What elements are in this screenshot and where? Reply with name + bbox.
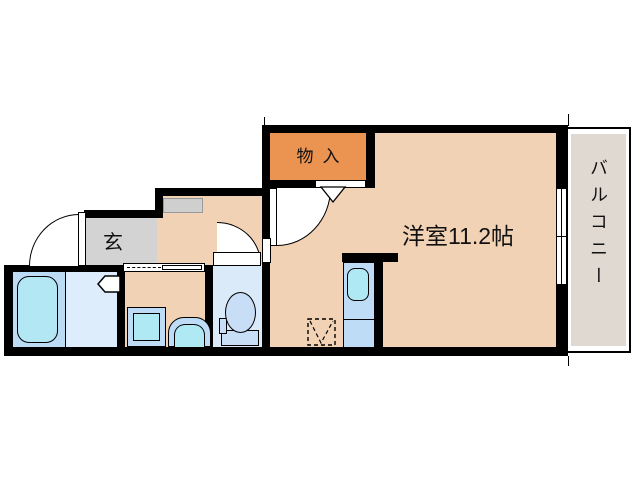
dimension-tick [568, 114, 569, 126]
storage-label: 物入 [270, 131, 366, 178]
wall [4, 265, 125, 272]
main-room-label: 洋室11.2帖 [402, 217, 514, 251]
wall [262, 263, 270, 347]
wall [4, 347, 568, 356]
wall [556, 285, 568, 347]
toilet-door-leaf [213, 252, 261, 266]
balcony-label: バルコニー [585, 158, 611, 293]
closet-bifold-v-icon [319, 186, 347, 205]
washroom-door-panel [162, 265, 202, 270]
entrance-label: 玄 [103, 226, 123, 255]
window-center-tick [556, 236, 567, 237]
floor-plan: 物入 洋室11.2帖 バルコニー 玄 [0, 0, 638, 480]
wall [556, 133, 568, 188]
wall [4, 265, 13, 356]
door-frame [262, 238, 271, 263]
wall [155, 188, 270, 196]
washing-machine-tub [133, 313, 160, 341]
wall [262, 180, 317, 188]
dimension-tick [264, 117, 265, 126]
shoe-cabinet [163, 198, 203, 213]
entrance-door-arc [29, 214, 79, 266]
wall [375, 262, 383, 348]
bath-folding-door-icon [95, 273, 123, 295]
kitchen-unit-divider [344, 319, 374, 320]
wall [84, 210, 163, 218]
wall [366, 133, 375, 188]
washroom-door-dash [127, 267, 161, 268]
bathtub [17, 276, 58, 343]
toilet-bowl [225, 292, 256, 333]
dimension-tick [568, 356, 569, 366]
washer-space-icon [307, 318, 337, 347]
wall [342, 253, 398, 262]
kitchen-sink [347, 268, 369, 301]
wash-basin-bowl [174, 324, 205, 347]
entrance-door-leaf [78, 212, 86, 266]
